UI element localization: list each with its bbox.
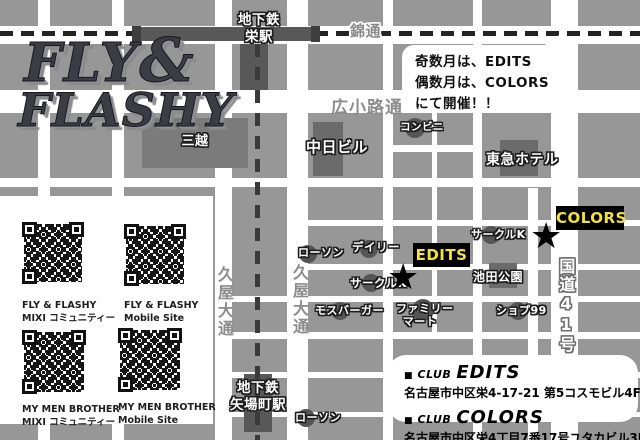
qr-caption-title: FLY & FLASHY xyxy=(22,300,115,313)
qr-finder-icon xyxy=(22,330,37,345)
qr-finder-icon xyxy=(118,328,133,343)
qr-finder-icon xyxy=(22,222,37,237)
street xyxy=(383,145,473,152)
sakae-station-line2: 栄駅 xyxy=(228,29,290,46)
qr-caption: FLY & FLASHY MIXI コミュニティー xyxy=(22,300,115,325)
yabacho-station-line2: 矢場町駅 xyxy=(220,397,296,414)
qr-code xyxy=(22,222,84,284)
street-label-hisaya-west: 久屋大通 xyxy=(212,266,236,338)
qr-caption: MY MEN BROTHER MIXI コミュニティー xyxy=(22,404,120,429)
landmark-mitsukoshi: 三越 xyxy=(142,135,248,150)
announcement-line3: にて開催！！ xyxy=(415,94,574,115)
club-word: CLUB xyxy=(418,413,452,426)
family-mart-line2: マート xyxy=(396,315,444,328)
family-mart-line1: ファミリー xyxy=(396,302,444,315)
qr-caption-subtitle: MIXI コミュニティー xyxy=(22,417,120,430)
qr-caption-title: MY MEN BROTHER xyxy=(118,402,216,415)
sakae-station-line1: 地下鉄 xyxy=(228,12,290,29)
qr-code xyxy=(124,224,186,286)
street-label-route41: 国道41号 xyxy=(556,258,574,354)
qr-finder-icon xyxy=(118,377,133,392)
landmark-family-mart: ファミリー マート xyxy=(396,302,444,328)
club-colors-row: ■ CLUB COLORS xyxy=(404,407,638,428)
qr-finder-icon xyxy=(124,224,139,239)
club-colors-address: 名古屋市中区栄4丁目7番17号ユタカビル3F xyxy=(404,429,638,440)
landmark-lawson: ローソン xyxy=(298,247,344,260)
qr-caption-subtitle: MIXI コミュニティー xyxy=(22,313,115,326)
announcement-bubble: 奇数月は、EDITS 偶数月は、COLORS にて開催！！ xyxy=(402,45,574,112)
yabacho-station-line1: 地下鉄 xyxy=(220,380,296,397)
logo-line1: FLY& xyxy=(24,34,234,89)
bullet-icon: ■ xyxy=(404,371,413,381)
street-label-hisaya-east: 久屋大通 xyxy=(287,264,311,336)
qr-caption-title: MY MEN BROTHER xyxy=(22,404,120,417)
street xyxy=(0,178,640,187)
club-edits-name: EDITS xyxy=(456,362,520,383)
qr-caption-title: FLY & FLASHY xyxy=(124,300,198,313)
announcement-line1: 奇数月は、EDITS xyxy=(415,52,574,73)
qr-caption-subtitle: Mobile Site xyxy=(118,415,216,428)
street xyxy=(215,332,640,339)
landmark-shop99: ショプ99 xyxy=(496,305,547,318)
edits-label: EDITS xyxy=(413,243,470,267)
qr-finder-icon xyxy=(69,222,84,237)
sakae-station-block xyxy=(240,44,268,90)
qr-caption: MY MEN BROTHER Mobile Site xyxy=(118,402,216,427)
qr-code xyxy=(22,330,86,394)
landmark-lawson: ローソン xyxy=(295,412,341,425)
street-label-hirokoji: 広小路通 xyxy=(331,93,403,118)
announcement-line2: 偶数月は、COLORS xyxy=(415,73,574,94)
qr-finder-icon xyxy=(71,330,86,345)
qr-panel: FLY & FLASHY MIXI コミュニティー FLY & FLASHY M… xyxy=(0,196,213,424)
colors-label: COLORS xyxy=(556,206,624,230)
yabacho-station-label: 地下鉄 矢場町駅 xyxy=(220,380,296,414)
qr-caption-subtitle: Mobile Site xyxy=(124,313,198,326)
bubble-tail xyxy=(542,33,562,47)
qr-finder-icon xyxy=(167,328,182,343)
qr-caption: FLY & FLASHY Mobile Site xyxy=(124,300,198,325)
club-word: CLUB xyxy=(418,368,452,381)
landmark-ikeda-park: 池田公園 xyxy=(473,271,523,285)
qr-code xyxy=(118,328,182,392)
logo-line2: FLASHY xyxy=(18,89,234,131)
landmark-circle-k: サークルK xyxy=(471,229,526,242)
qr-finder-icon xyxy=(124,271,139,286)
landmark-tokyu-hotel: 東急ホテル xyxy=(486,152,559,168)
qr-finder-icon xyxy=(171,224,186,239)
club-edits-address: 名古屋市中区栄4-17-21 第5コスモビル4F xyxy=(404,384,638,401)
qr-finder-icon xyxy=(22,269,37,284)
sakae-station-label: 地下鉄 栄駅 xyxy=(228,12,290,46)
bullet-icon: ■ xyxy=(404,416,413,426)
flyer-map: 錦通 広小路通 久屋大通 久屋大通 国道41号 地下鉄 栄駅 地下鉄 矢場町駅 … xyxy=(0,0,640,440)
club-edits-row: ■ CLUB EDITS xyxy=(404,362,638,383)
club-info-bubble: ■ CLUB EDITS 名古屋市中区栄4-17-21 第5コスモビル4F ■ … xyxy=(388,355,638,422)
fly-flashy-logo: FLY& FLASHY xyxy=(24,34,234,132)
landmark-daily: デイリー xyxy=(352,241,400,254)
street-label-nishiki: 錦通 xyxy=(350,23,381,40)
landmark-chunichi: 中日ビル xyxy=(306,139,368,156)
club-colors-name: COLORS xyxy=(456,407,543,428)
qr-finder-icon xyxy=(22,379,37,394)
landmark-conbini: コンビニ xyxy=(400,121,444,133)
station-end-cap xyxy=(311,26,320,42)
landmark-mos-burger: モスバーガー xyxy=(315,305,384,318)
